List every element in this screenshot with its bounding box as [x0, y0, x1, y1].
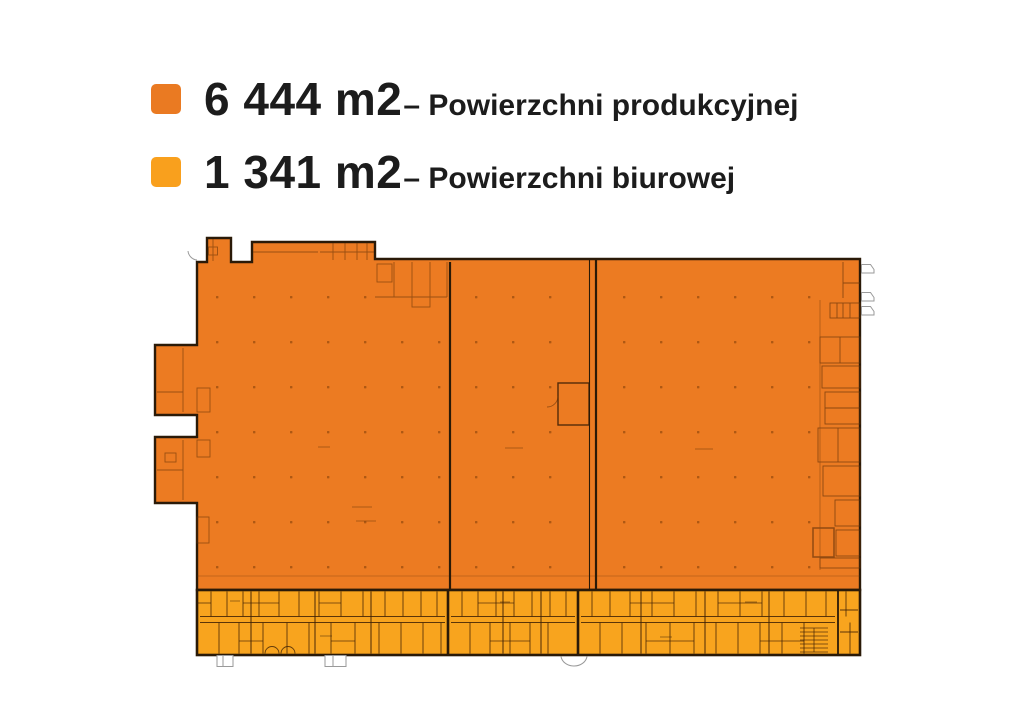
- door-symbol-icon: [862, 307, 875, 316]
- bottom-door-icon: [325, 656, 346, 667]
- door-symbol-icon: [862, 293, 875, 302]
- bottom-door-arc-icon: [574, 657, 587, 667]
- production-area-shape: [155, 238, 860, 590]
- top-left-arc-icon: [188, 251, 197, 260]
- floor-plan-svg: [0, 0, 1024, 717]
- bottom-door-icon: [217, 656, 233, 667]
- door-symbol-icon: [862, 265, 875, 274]
- bottom-door-arc-icon: [561, 657, 574, 667]
- floor-plan: [0, 0, 1024, 717]
